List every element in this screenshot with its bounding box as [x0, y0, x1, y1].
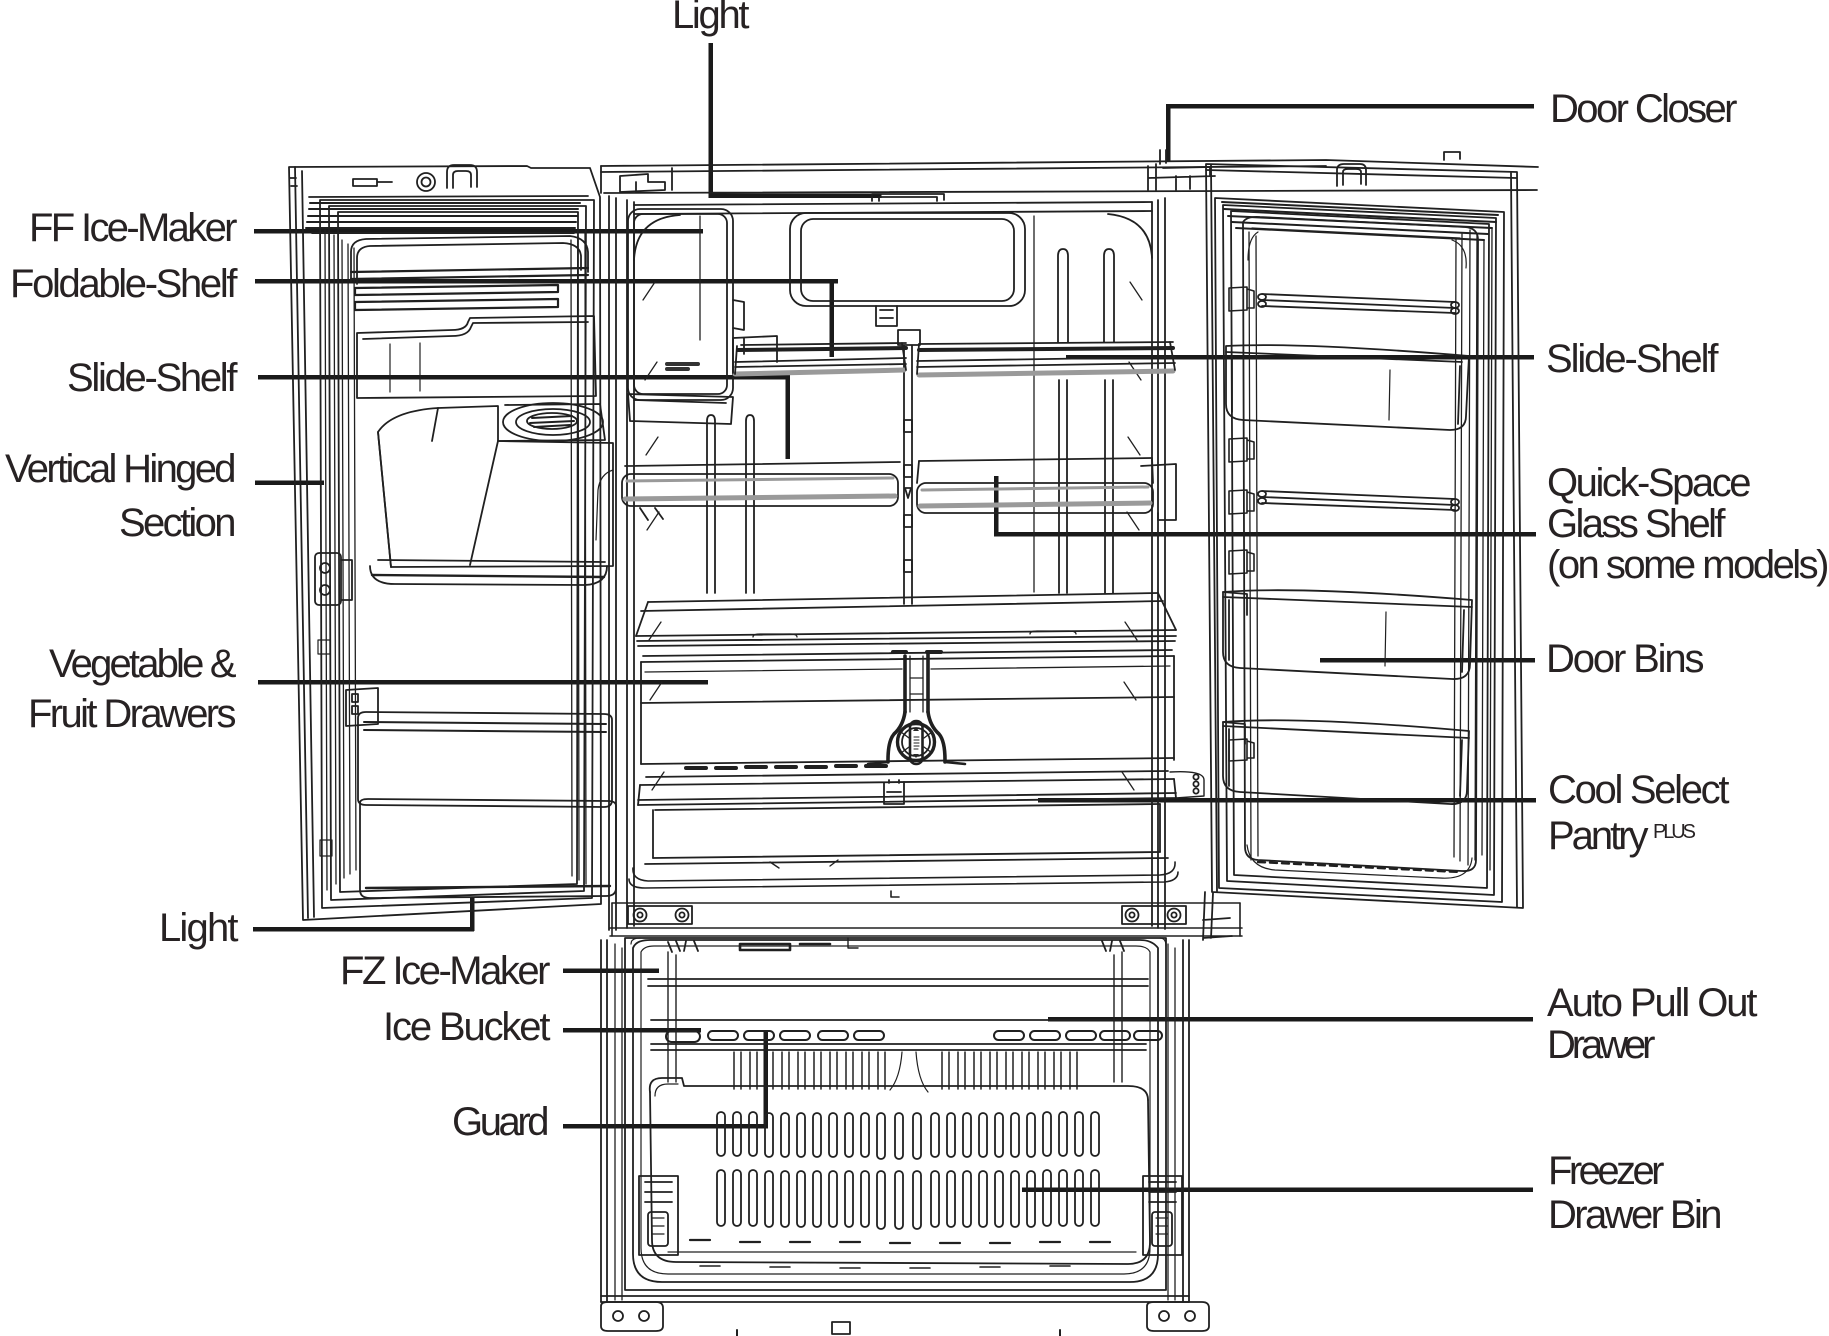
- svg-text:Vegetable &: Vegetable &: [49, 642, 237, 686]
- svg-text:Door Bins: Door Bins: [1546, 637, 1704, 681]
- svg-text:Freezer: Freezer: [1548, 1149, 1664, 1193]
- svg-text:Slide-Shelf: Slide-Shelf: [67, 356, 238, 400]
- svg-text:Drawer Bin: Drawer Bin: [1548, 1193, 1722, 1237]
- svg-text:Quick-Space: Quick-Space: [1547, 461, 1751, 505]
- svg-text:Section: Section: [119, 501, 236, 545]
- svg-text:Light: Light: [159, 906, 238, 950]
- svg-text:Door Closer: Door Closer: [1550, 87, 1737, 131]
- svg-text:Pantry: Pantry: [1548, 814, 1649, 858]
- svg-text:Foldable-Shelf: Foldable-Shelf: [10, 262, 238, 306]
- svg-text:FZ Ice-Maker: FZ Ice-Maker: [340, 949, 550, 993]
- svg-text:Glass Shelf: Glass Shelf: [1547, 502, 1726, 546]
- svg-text:Light: Light: [672, 0, 749, 37]
- svg-text:Cool Select: Cool Select: [1548, 768, 1729, 812]
- svg-text:Guard: Guard: [452, 1100, 549, 1144]
- svg-text:Auto Pull Out: Auto Pull Out: [1547, 981, 1757, 1025]
- svg-text:(on some models): (on some models): [1547, 543, 1829, 587]
- svg-text:Slide-Shelf: Slide-Shelf: [1546, 337, 1719, 381]
- svg-text:Fruit Drawers: Fruit Drawers: [28, 692, 236, 736]
- svg-text:PLUS: PLUS: [1653, 821, 1696, 843]
- svg-text:Drawer: Drawer: [1547, 1023, 1655, 1067]
- svg-text:Vertical Hinged: Vertical Hinged: [5, 447, 236, 491]
- svg-text:FF Ice-Maker: FF Ice-Maker: [29, 206, 237, 250]
- svg-text:Ice Bucket: Ice Bucket: [383, 1005, 550, 1049]
